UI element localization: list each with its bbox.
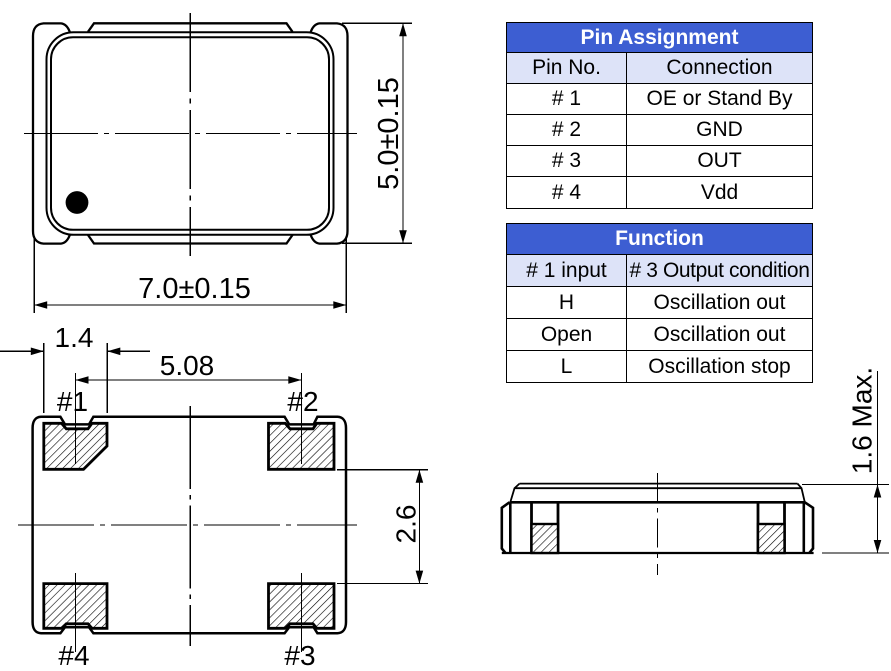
svg-text:1.6 Max.: 1.6 Max. bbox=[847, 367, 878, 474]
svg-text:2.6: 2.6 bbox=[391, 505, 422, 544]
svg-text:#3: #3 bbox=[284, 640, 315, 671]
svg-text:5.0±0.15: 5.0±0.15 bbox=[373, 77, 405, 190]
svg-text:#1: #1 bbox=[57, 386, 88, 417]
svg-text:5.08: 5.08 bbox=[160, 350, 215, 381]
svg-text:#4: #4 bbox=[58, 640, 89, 671]
svg-text:#2: #2 bbox=[287, 386, 318, 417]
svg-text:1.4: 1.4 bbox=[55, 322, 94, 353]
svg-text:7.0±0.15: 7.0±0.15 bbox=[138, 273, 251, 305]
